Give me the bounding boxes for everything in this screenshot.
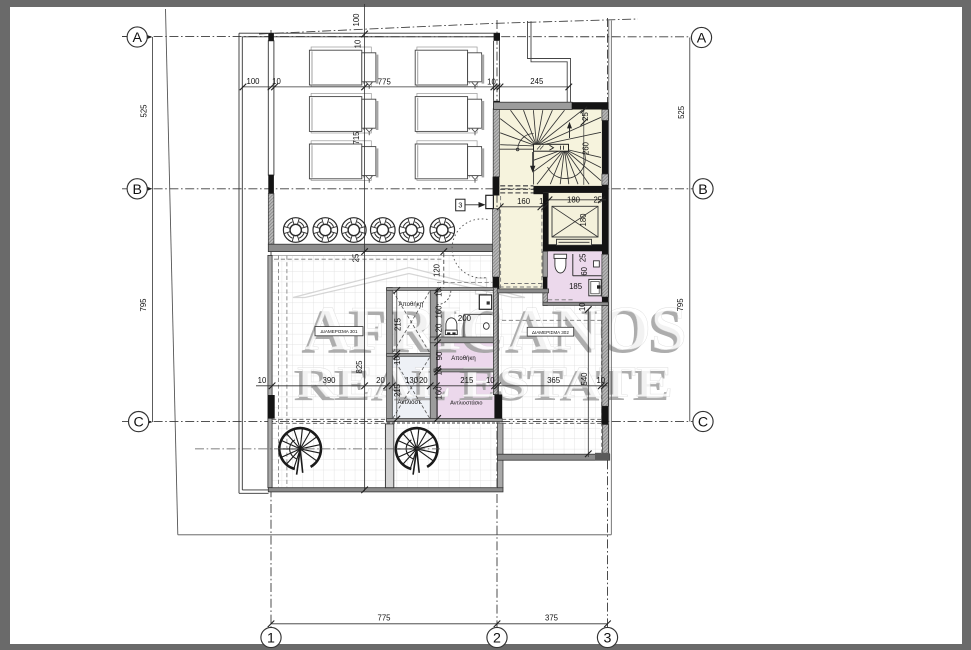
svg-text:Αντλιοστάσιο: Αντλιοστάσιο [450, 399, 482, 406]
svg-text:775: 775 [378, 77, 392, 86]
svg-text:215: 215 [460, 376, 474, 385]
svg-text:200: 200 [458, 314, 472, 323]
svg-text:775: 775 [377, 613, 391, 622]
svg-text:185: 185 [569, 282, 583, 291]
svg-text:795: 795 [676, 298, 685, 312]
svg-text:525: 525 [677, 105, 686, 119]
svg-text:A: A [132, 30, 142, 46]
svg-text:100: 100 [352, 13, 361, 27]
svg-text:3: 3 [458, 201, 462, 210]
svg-text:1: 1 [267, 631, 275, 647]
svg-text:Αποθήκη: Αποθήκη [399, 301, 423, 308]
svg-text:160: 160 [517, 197, 531, 206]
svg-text:390: 390 [322, 376, 336, 385]
svg-text:25: 25 [581, 112, 590, 121]
svg-text:215: 215 [393, 383, 402, 397]
svg-text:120: 120 [433, 263, 442, 277]
svg-text:10: 10 [258, 376, 267, 385]
svg-text:375: 375 [545, 613, 559, 622]
svg-text:180: 180 [579, 213, 588, 227]
svg-text:795: 795 [139, 298, 148, 312]
svg-text:10: 10 [435, 366, 444, 375]
svg-text:B: B [132, 182, 141, 198]
svg-text:10: 10 [596, 376, 605, 385]
svg-text:160: 160 [435, 305, 444, 319]
svg-text:160: 160 [435, 386, 444, 400]
svg-text:10: 10 [435, 288, 444, 297]
svg-text:25: 25 [579, 253, 588, 262]
svg-text:10: 10 [272, 77, 281, 86]
svg-text:ΔΙΑΜΕΡΙΣΜΑ 302: ΔΙΑΜΕΡΙΣΜΑ 302 [532, 330, 570, 335]
svg-text:525: 525 [139, 104, 148, 118]
svg-text:20: 20 [419, 376, 428, 385]
svg-text:B: B [698, 182, 707, 198]
svg-text:C: C [133, 415, 143, 431]
svg-text:180: 180 [567, 195, 581, 204]
svg-text:25: 25 [351, 253, 360, 262]
svg-text:540: 540 [580, 372, 589, 386]
svg-text:825: 825 [355, 360, 364, 374]
svg-text:100: 100 [246, 77, 260, 86]
svg-text:2: 2 [493, 631, 501, 647]
svg-text:10: 10 [578, 302, 587, 311]
svg-text:C: C [698, 415, 708, 431]
svg-text:3: 3 [604, 631, 612, 647]
svg-text:25: 25 [593, 195, 602, 204]
svg-text:Αποθήκη: Αποθήκη [451, 355, 475, 362]
svg-text:10: 10 [353, 39, 362, 48]
svg-text:130: 130 [405, 376, 419, 385]
svg-text:10: 10 [486, 376, 495, 385]
svg-text:365: 365 [547, 376, 561, 385]
svg-text:Αντλιοστ.: Αντλιοστ. [398, 400, 423, 406]
svg-text:10: 10 [393, 356, 402, 365]
svg-text:90: 90 [435, 351, 444, 360]
svg-text:245: 245 [530, 77, 544, 86]
svg-text:260: 260 [582, 141, 591, 155]
svg-text:10: 10 [487, 77, 496, 86]
svg-text:215: 215 [394, 317, 403, 331]
svg-text:715: 715 [352, 131, 361, 145]
svg-text:20: 20 [376, 376, 385, 385]
svg-text:ΔΙΑΜΕΡΙΣΜΑ 301: ΔΙΑΜΕΡΙΣΜΑ 301 [320, 329, 358, 334]
svg-text:A: A [697, 31, 707, 47]
svg-text:60: 60 [580, 266, 589, 275]
svg-text:20: 20 [435, 323, 444, 332]
